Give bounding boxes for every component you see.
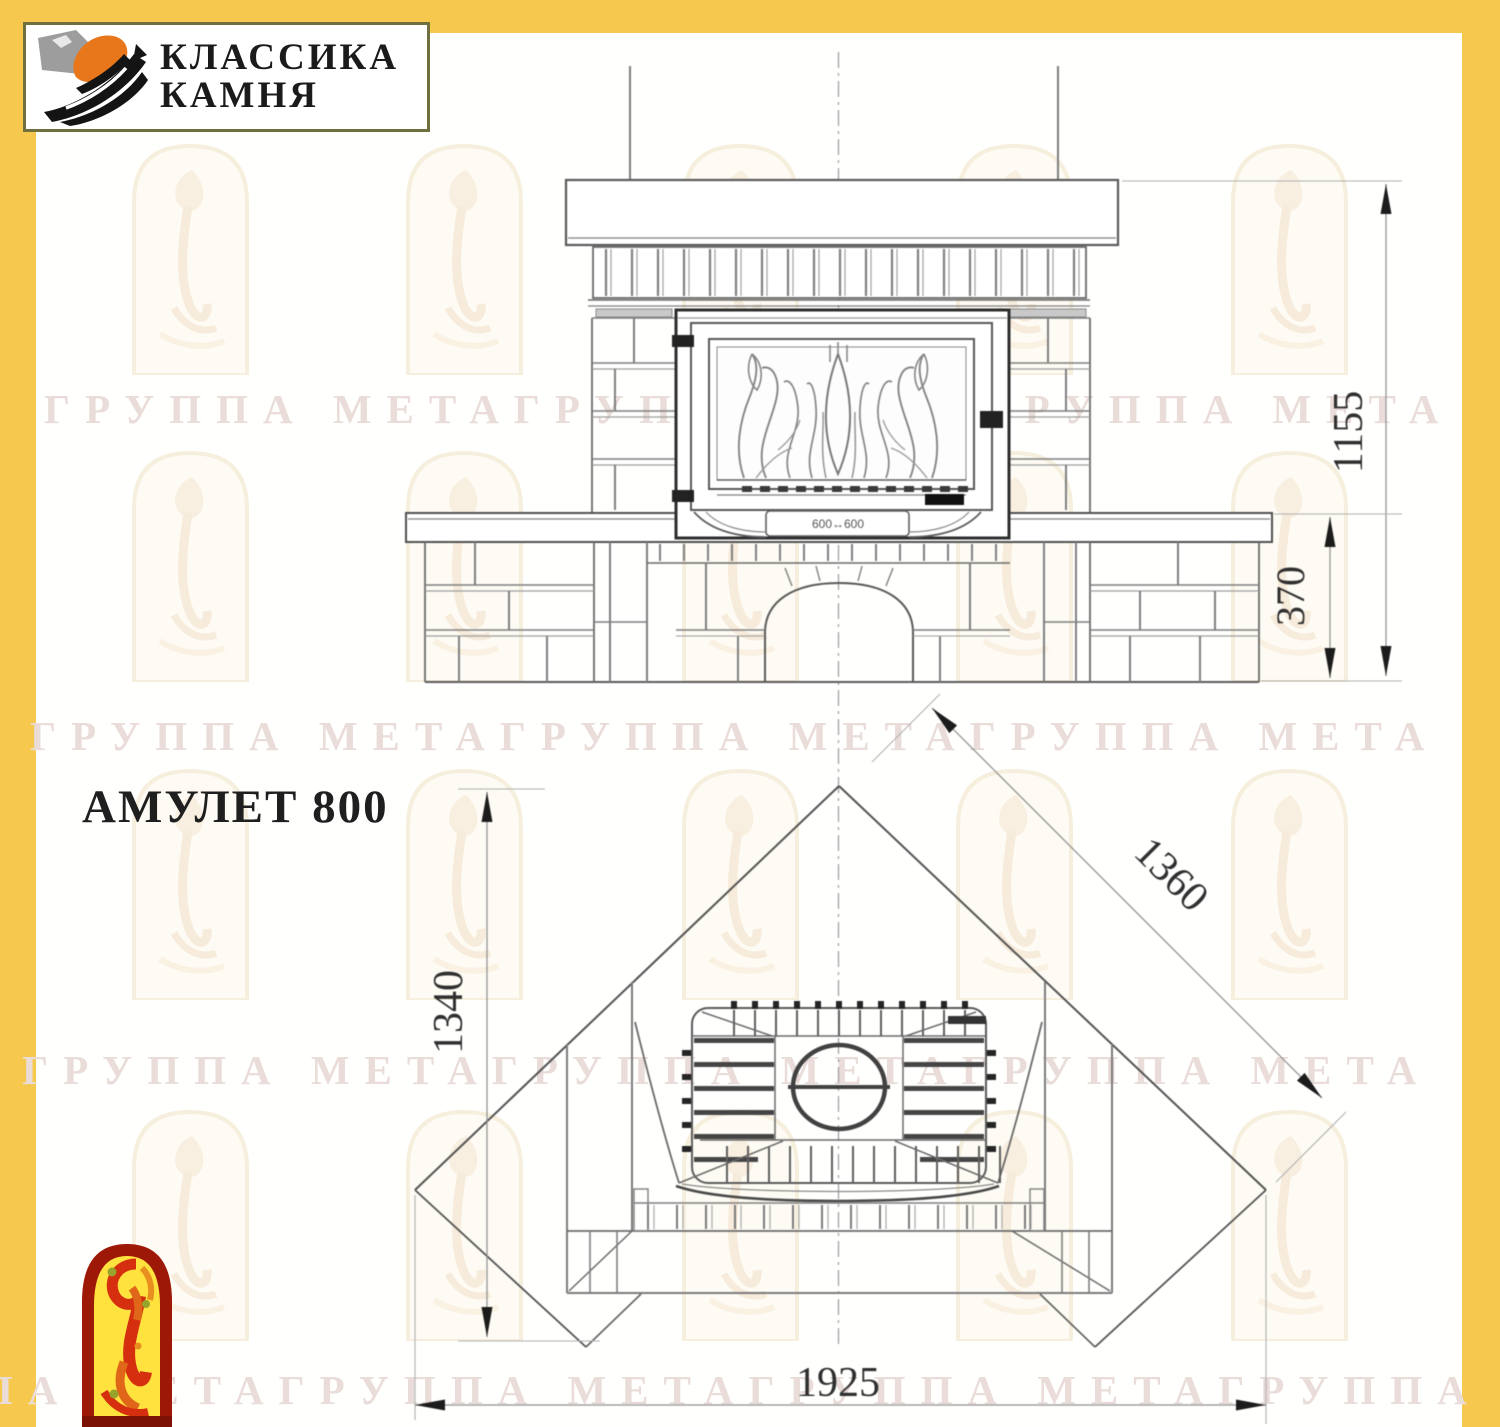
svg-text:1340: 1340 bbox=[426, 970, 472, 1054]
svg-text:600↔600: 600↔600 bbox=[812, 517, 864, 531]
svg-text:1925: 1925 bbox=[796, 1360, 880, 1406]
svg-text:370: 370 bbox=[1268, 566, 1313, 626]
svg-text:1155: 1155 bbox=[1326, 391, 1372, 473]
svg-text:1360: 1360 bbox=[1125, 829, 1217, 921]
